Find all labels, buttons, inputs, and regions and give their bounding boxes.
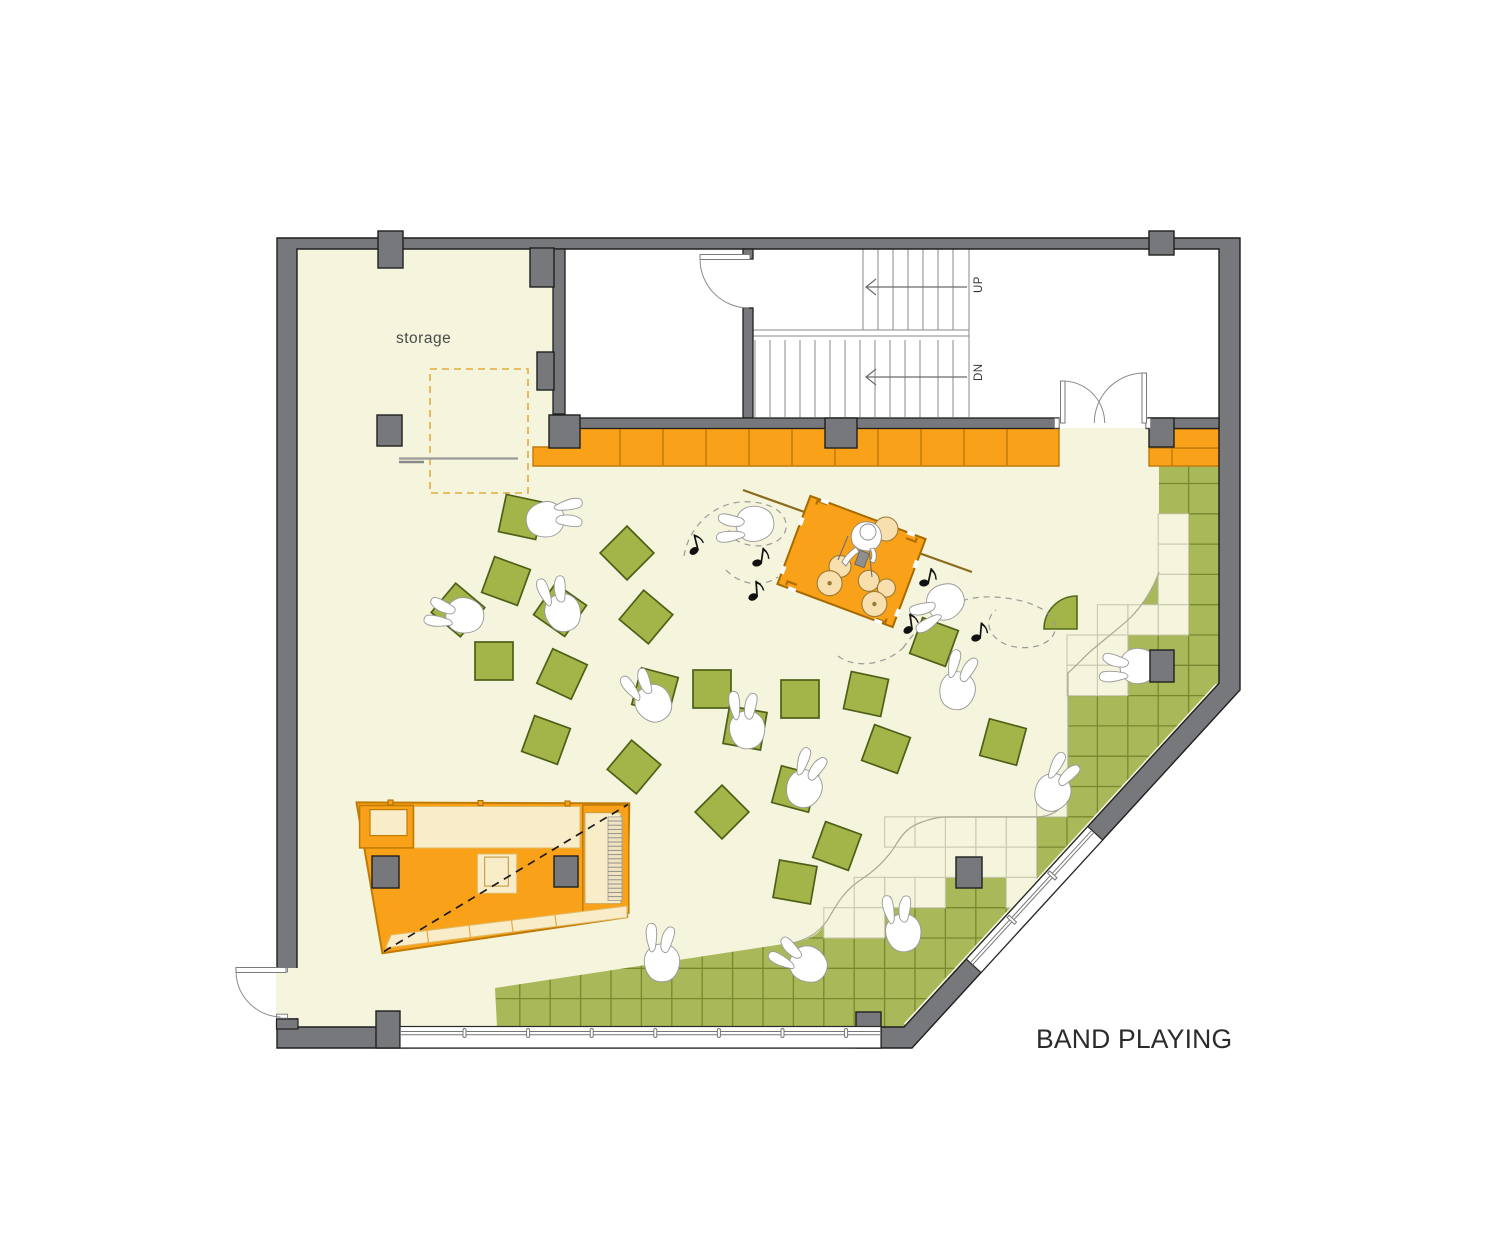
- svg-text:storage: storage: [396, 330, 451, 347]
- svg-text:DN: DN: [973, 363, 985, 381]
- svg-text:UP: UP: [973, 276, 985, 293]
- svg-text:BAND PLAYING: BAND PLAYING: [1036, 1024, 1232, 1054]
